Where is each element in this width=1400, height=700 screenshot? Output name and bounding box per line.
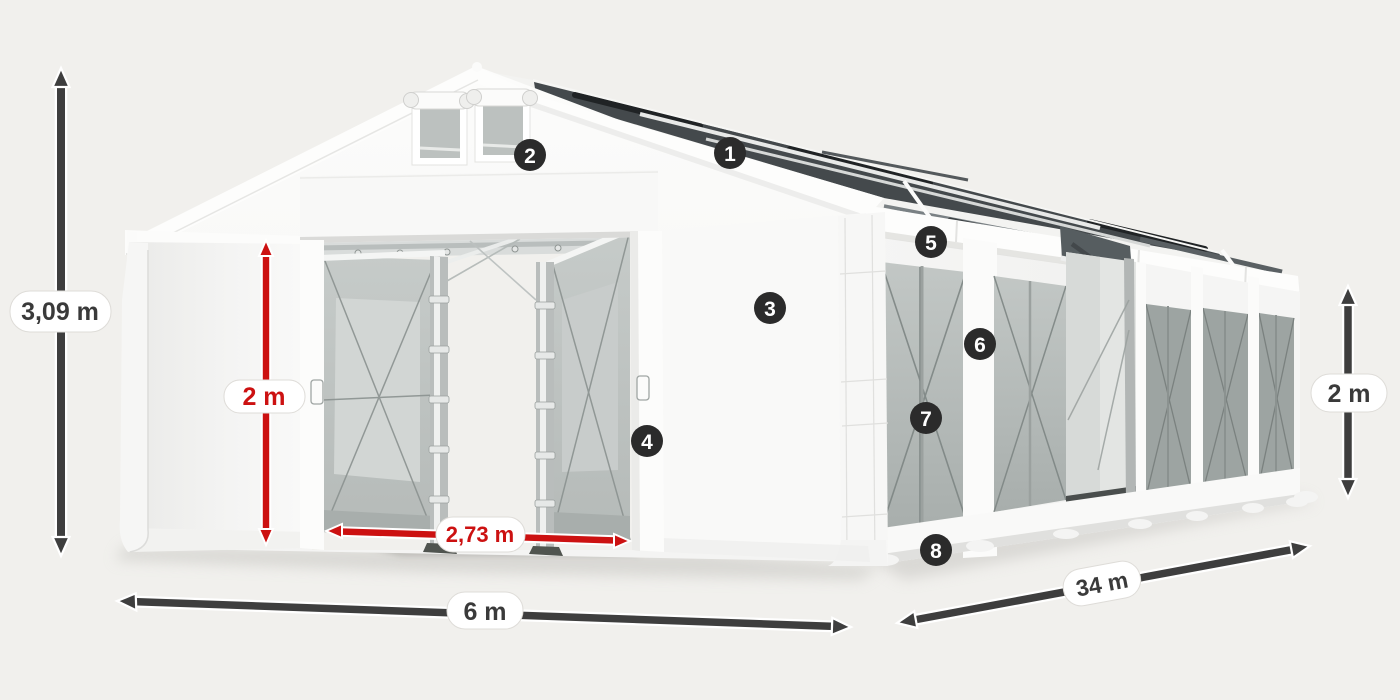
svg-text:6: 6 [974,334,986,357]
svg-text:2 m: 2 m [242,383,285,411]
svg-text:2: 2 [524,145,536,168]
svg-text:3: 3 [764,298,776,321]
svg-text:8: 8 [930,540,942,563]
svg-text:4: 4 [641,431,653,454]
svg-text:7: 7 [920,408,932,431]
svg-text:1: 1 [724,143,736,166]
svg-text:2 m: 2 m [1327,380,1370,408]
svg-text:5: 5 [925,232,937,255]
svg-text:3,09 m: 3,09 m [21,298,99,326]
svg-text:2,73 m: 2,73 m [446,522,515,547]
svg-text:6 m: 6 m [463,598,506,626]
